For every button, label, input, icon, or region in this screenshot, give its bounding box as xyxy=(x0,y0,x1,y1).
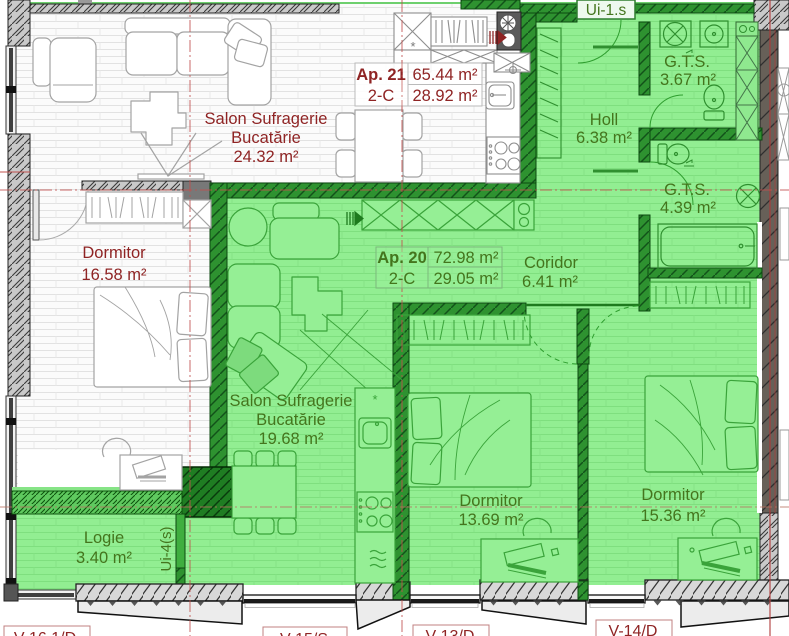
svg-text:Coridor: Coridor xyxy=(524,254,579,272)
svg-text:29.05 m²: 29.05 m² xyxy=(433,270,499,288)
svg-text:G.T.S.: G.T.S. xyxy=(664,53,710,71)
svg-text:Dormitor: Dormitor xyxy=(459,492,523,510)
svg-text:6.38 m²: 6.38 m² xyxy=(576,129,632,147)
svg-text:Salon Sufragerie: Salon Sufragerie xyxy=(205,110,328,128)
svg-text:2-C: 2-C xyxy=(389,270,416,288)
svg-text:G.T.S.: G.T.S. xyxy=(664,181,710,199)
svg-text:65.44 m²: 65.44 m² xyxy=(412,66,478,84)
svg-text:Logie: Logie xyxy=(84,529,124,547)
svg-text:V-15/S: V-15/S xyxy=(280,631,328,636)
svg-text:V-14/D: V-14/D xyxy=(609,623,658,636)
svg-text:24.32 m²: 24.32 m² xyxy=(233,148,299,166)
svg-text:Holl: Holl xyxy=(590,111,618,129)
svg-text:6.41 m²: 6.41 m² xyxy=(522,273,578,291)
svg-text:72.98 m²: 72.98 m² xyxy=(433,249,499,267)
svg-text:Bucatărie: Bucatărie xyxy=(256,411,326,429)
svg-text:V-16.1/D: V-16.1/D xyxy=(14,630,76,636)
svg-text:Ui-1.s: Ui-1.s xyxy=(586,2,627,19)
svg-text:Dormitor: Dormitor xyxy=(641,486,705,504)
svg-text:Bucatărie: Bucatărie xyxy=(231,129,301,147)
svg-text:3.67 m²: 3.67 m² xyxy=(660,71,716,89)
svg-text:V-13/D: V-13/D xyxy=(426,628,475,636)
svg-text:*: * xyxy=(372,392,377,407)
svg-text:15.36 m²: 15.36 m² xyxy=(640,507,706,525)
svg-text:4.39 m²: 4.39 m² xyxy=(660,199,716,217)
svg-text:16.58 m²: 16.58 m² xyxy=(81,266,147,284)
svg-text:*: * xyxy=(410,39,415,54)
svg-text:13.69 m²: 13.69 m² xyxy=(458,511,524,529)
svg-text:Dormitor: Dormitor xyxy=(82,244,146,262)
svg-text:Ap. 21: Ap. 21 xyxy=(356,66,406,84)
svg-text:28.92 m²: 28.92 m² xyxy=(412,87,478,105)
svg-text:Ap. 20: Ap. 20 xyxy=(377,249,427,267)
svg-text:Ui-4(s): Ui-4(s) xyxy=(158,527,175,572)
svg-text:Salon Sufragerie: Salon Sufragerie xyxy=(230,392,353,410)
svg-text:2-C: 2-C xyxy=(368,87,395,105)
svg-text:3.40 m²: 3.40 m² xyxy=(76,549,132,567)
svg-text:19.68 m²: 19.68 m² xyxy=(258,430,324,448)
